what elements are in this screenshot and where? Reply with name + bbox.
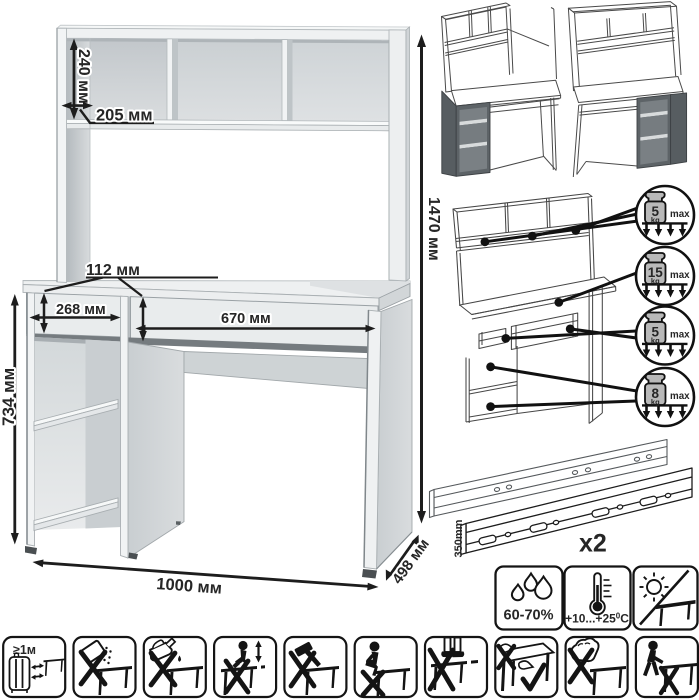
svg-text:kg: kg [651, 397, 660, 406]
svg-text:kg: kg [651, 276, 660, 285]
svg-text:≥1м: ≥1м [13, 643, 36, 657]
svg-text:1000 мм: 1000 мм [156, 575, 223, 598]
svg-text:max: max [670, 330, 690, 341]
svg-text:205 мм: 205 мм [96, 107, 153, 125]
svg-text:kg: kg [651, 215, 660, 224]
svg-text:x2: x2 [579, 530, 607, 558]
svg-text:max: max [670, 270, 690, 281]
svg-text:1470 мм: 1470 мм [425, 197, 442, 261]
svg-text:kg: kg [651, 336, 660, 345]
svg-text:268 мм: 268 мм [56, 302, 106, 318]
svg-text:max: max [670, 209, 690, 220]
svg-text:734 мм: 734 мм [0, 368, 18, 426]
svg-text:60-70%: 60-70% [504, 608, 554, 624]
svg-text:350mm: 350mm [453, 519, 465, 557]
svg-text:112 мм: 112 мм [86, 262, 140, 279]
svg-text:240 мм: 240 мм [75, 49, 92, 104]
svg-text:+10...+250C: +10...+250C [565, 612, 629, 626]
svg-text:max: max [670, 391, 690, 402]
svg-text:670 мм: 670 мм [221, 311, 271, 327]
